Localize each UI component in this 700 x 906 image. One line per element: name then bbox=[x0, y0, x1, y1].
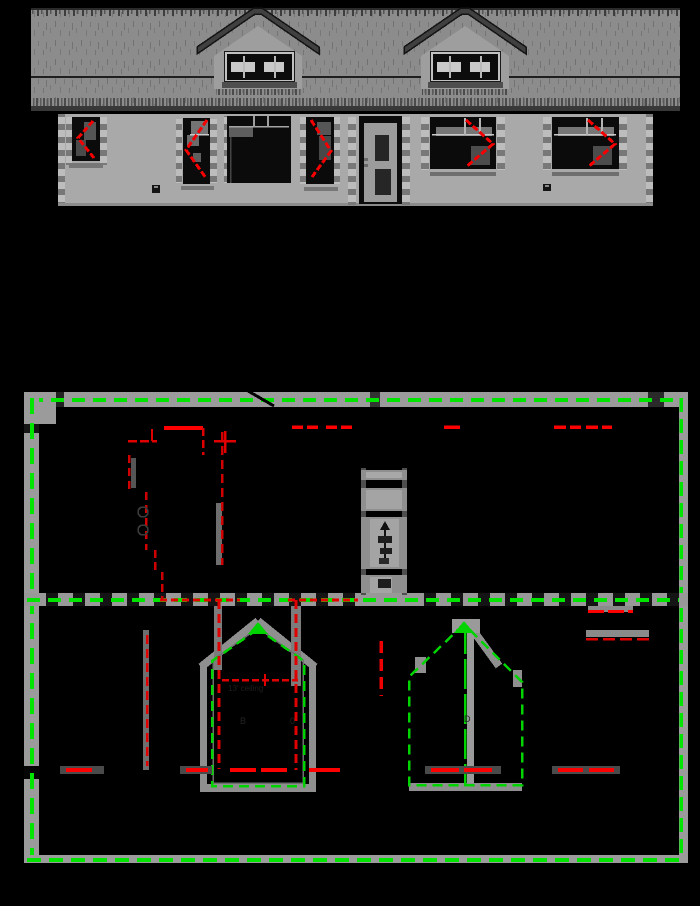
svg-text:13' ceiling: 13' ceiling bbox=[228, 684, 263, 693]
svg-text:0: 0 bbox=[290, 716, 295, 726]
svg-text:D: D bbox=[464, 714, 471, 724]
svg-text:B: B bbox=[240, 716, 246, 726]
